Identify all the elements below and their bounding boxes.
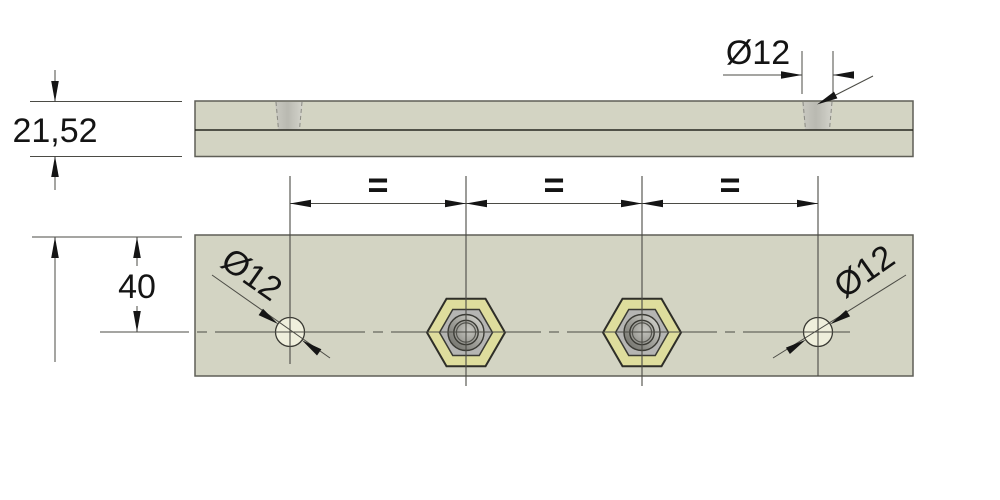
- equal-spacing-label-3: =: [719, 164, 740, 205]
- dimension-label-thickness: 21,52: [12, 112, 97, 150]
- arrowhead: [833, 71, 854, 79]
- dimension-label-edge-to-center: 40: [118, 268, 156, 306]
- equal-spacing-label-1: =: [367, 164, 388, 205]
- dimension-hole-side: Ø12: [723, 34, 873, 105]
- technical-drawing: 21,52 Ø12 40 = = =: [0, 0, 1000, 500]
- arrowhead: [133, 237, 141, 258]
- dimension-equal-spacing: = = =: [290, 164, 818, 207]
- arrowhead: [51, 156, 59, 177]
- side-view: [195, 101, 913, 157]
- side-view-hole-right: [802, 102, 833, 130]
- arrowhead: [642, 200, 663, 208]
- arrowhead: [797, 200, 818, 208]
- top-view-plate: [195, 235, 913, 376]
- arrowhead: [621, 200, 642, 208]
- arrowhead: [290, 200, 311, 208]
- arrowhead: [781, 71, 802, 79]
- equal-spacing-label-2: =: [543, 164, 564, 205]
- dimension-thickness: 21,52: [12, 70, 182, 362]
- arrowhead: [133, 311, 141, 332]
- top-view: [195, 235, 913, 376]
- arrowhead: [51, 81, 59, 102]
- arrowhead: [51, 237, 59, 258]
- side-view-hole-left: [275, 102, 303, 130]
- dimension-label-hole-side: Ø12: [726, 34, 790, 72]
- arrowhead: [445, 200, 466, 208]
- arrowhead: [466, 200, 487, 208]
- drawing-canvas: 21,52 Ø12 40 = = =: [0, 0, 1000, 500]
